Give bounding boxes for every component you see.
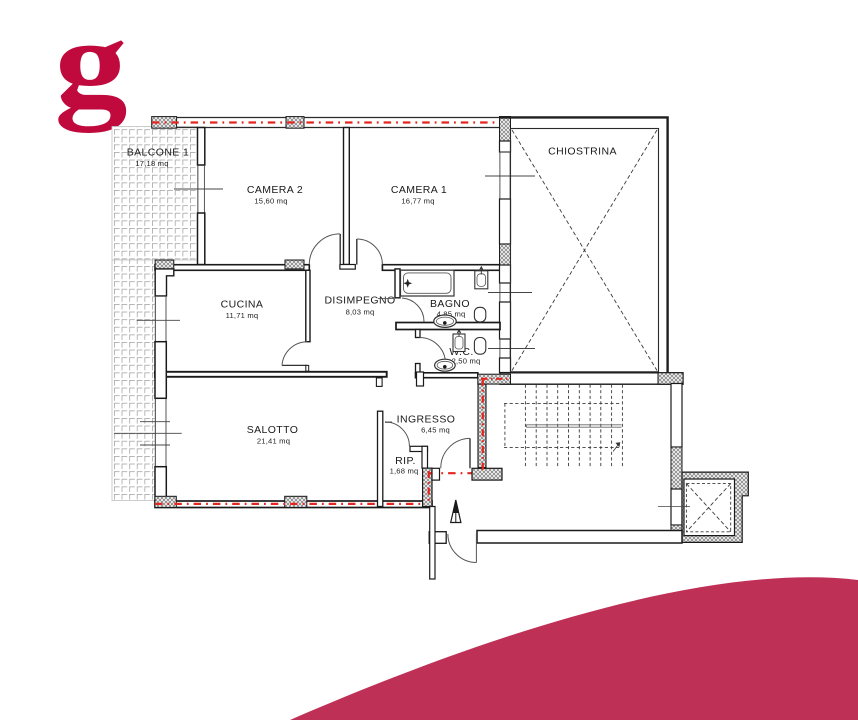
svg-text:CHIOSTRINA: CHIOSTRINA	[548, 146, 617, 158]
svg-text:BALCONE 1: BALCONE 1	[127, 147, 190, 159]
svg-text:16,77 mq: 16,77 mq	[401, 197, 434, 206]
svg-text:17,18 mq: 17,18 mq	[135, 159, 168, 168]
svg-text:SALOTTO: SALOTTO	[247, 424, 299, 436]
svg-text:1,68 mq: 1,68 mq	[390, 467, 419, 476]
svg-text:CAMERA 1: CAMERA 1	[391, 184, 447, 196]
svg-text:11,71 mq: 11,71 mq	[226, 311, 259, 320]
svg-text:CUCINA: CUCINA	[221, 299, 264, 311]
svg-text:RIP.: RIP.	[395, 455, 416, 467]
svg-text:8,03 mq: 8,03 mq	[346, 308, 375, 317]
svg-text:INGRESSO: INGRESSO	[397, 414, 456, 426]
svg-text:2,50 mq: 2,50 mq	[452, 357, 481, 366]
svg-text:CAMERA 2: CAMERA 2	[247, 184, 303, 196]
svg-text:6,45 mq: 6,45 mq	[421, 426, 450, 435]
svg-text:g: g	[54, 0, 127, 133]
svg-text:21,41 mq: 21,41 mq	[257, 437, 290, 446]
svg-text:BAGNO: BAGNO	[430, 298, 470, 310]
svg-text:DISIMPEGNO: DISIMPEGNO	[324, 295, 395, 307]
svg-text:15,60 mq: 15,60 mq	[254, 197, 287, 206]
